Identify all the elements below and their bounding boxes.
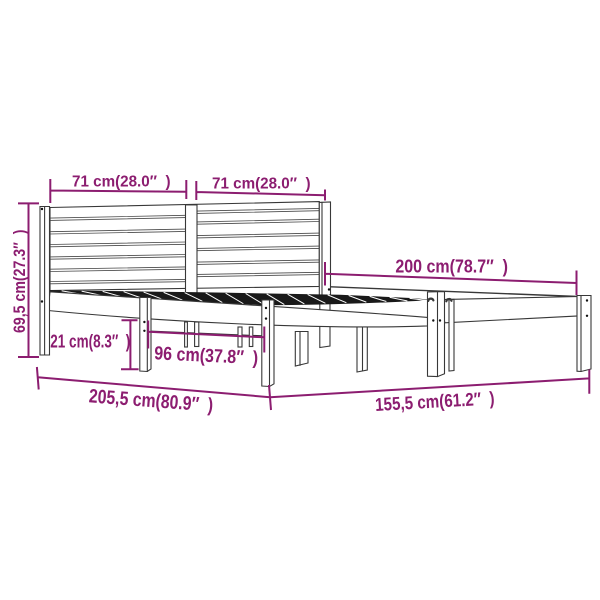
svg-text:200 cm(78.7″ ): 200 cm(78.7″ ) [395,255,508,276]
svg-text:21 cm(8.3″ ): 21 cm(8.3″ ) [50,331,130,351]
svg-text:71 cm(28.0″ ): 71 cm(28.0″ ) [72,174,171,191]
svg-text:71 cm(28.0″ ): 71 cm(28.0″ ) [212,175,311,192]
svg-text:69,5 cm(27.3″ ): 69,5 cm(27.3″ ) [11,230,29,334]
